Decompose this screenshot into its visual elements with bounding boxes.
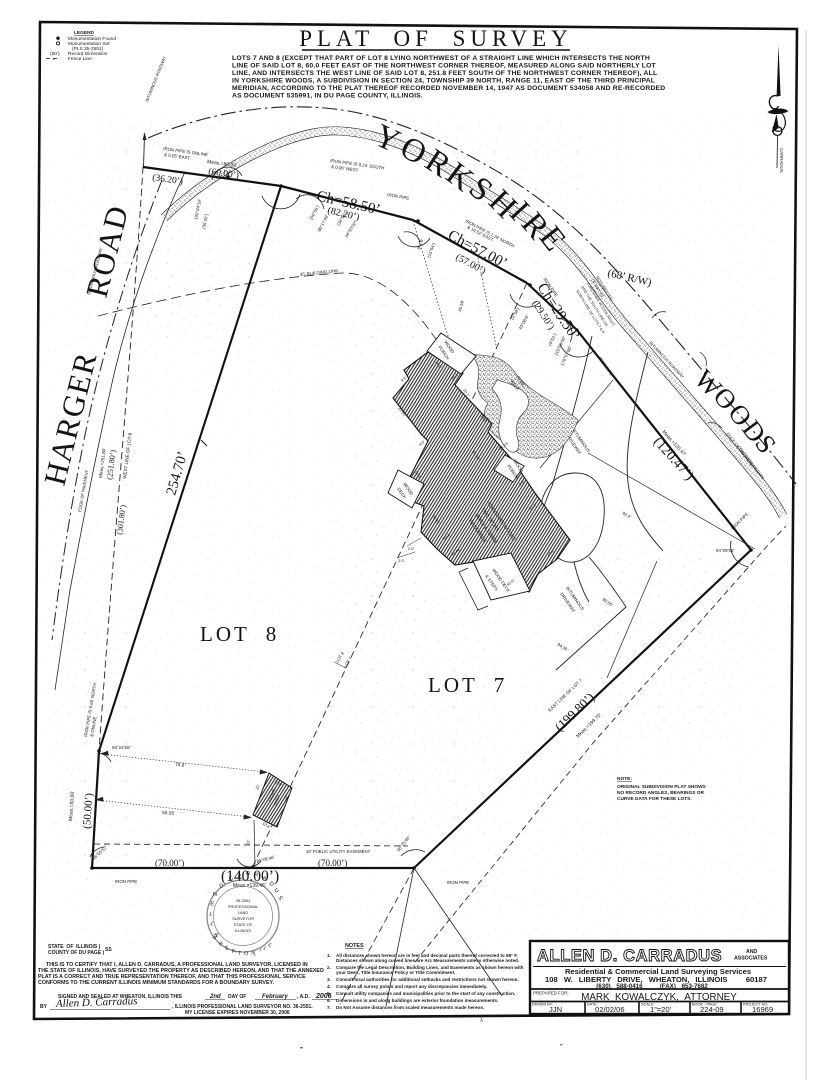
svg-text:1”=20’: 1”=20’	[650, 1005, 672, 1014]
svg-text:Dimensions in and along buildi: Dimensions in and along buildings are ex…	[336, 998, 498, 1003]
svg-text:(50’): (50’)	[50, 51, 60, 57]
svg-text:COUNTY OF DU PAGE ): COUNTY OF DU PAGE )	[48, 950, 105, 956]
svg-text:N: N	[213, 892, 217, 898]
svg-text:2.0’: 2.0’	[408, 546, 414, 551]
svg-text:(50.00’): (50.00’)	[81, 792, 95, 829]
svg-text:ASSOCIATES: ASSOCIATES	[734, 956, 768, 962]
svg-text:94°09’51”: 94°09’51”	[716, 548, 735, 553]
svg-text:February: February	[262, 994, 288, 1000]
svg-text:1.: 1.	[327, 953, 331, 958]
svg-text:PLAT OF SURVEY: PLAT OF SURVEY	[299, 26, 573, 51]
svg-text:2.0’: 2.0’	[398, 558, 404, 563]
svg-text:LOTS 7 AND 8 (EXCEPT THAT PART: LOTS 7 AND 8 (EXCEPT THAT PART OF LOT 8 …	[232, 55, 650, 62]
svg-text:4.: 4.	[327, 984, 331, 989]
svg-text:IN YORKSHIRE WOODS, A SUBDIVIS: IN YORKSHIRE WOODS, A SUBDIVISION IN SEC…	[232, 78, 655, 85]
svg-text:2.: 2.	[327, 965, 331, 970]
svg-text:ILLINOIS: ILLINOIS	[235, 928, 251, 933]
svg-text:NOTES: NOTES	[345, 943, 364, 949]
svg-text:IRON PIPE: IRON PIPE	[115, 879, 137, 884]
svg-text:CONFORMS TO THE CURRENT ILLINO: CONFORMS TO THE CURRENT ILLINOIS MINIMUM…	[38, 980, 274, 986]
svg-text:PREPARED FOR:: PREPARED FOR:	[533, 991, 569, 996]
svg-text:3.: 3.	[327, 977, 331, 982]
svg-text:PROFESSIONAL: PROFESSIONAL	[228, 904, 259, 909]
svg-text:10’ PUBLIC UTILITY EASEMENT: 10’ PUBLIC UTILITY EASEMENT	[306, 849, 371, 854]
svg-text:CURVE DATA FOR THESE LOTS.: CURVE DATA FOR THESE LOTS.	[617, 796, 692, 802]
svg-text:75.8’: 75.8’	[175, 762, 186, 769]
svg-text:56°24’55”: 56°24’55”	[112, 745, 131, 750]
svg-text:6.: 6.	[327, 998, 331, 1003]
svg-text:MY LICENSE EXPIRES NOVEMBER 30: MY LICENSE EXPIRES NOVEMBER 30, 2006	[185, 1010, 290, 1016]
svg-text:Consult local authorities for: Consult local authorities for additional…	[336, 977, 519, 982]
svg-text:SS: SS	[105, 947, 112, 953]
svg-text:R: R	[246, 871, 250, 877]
svg-text:(70.00’): (70.00’)	[318, 858, 347, 868]
svg-text:LINE, AND INTERSECTS THE WEST: LINE, AND INTERSECTS THE WEST LINE OF SA…	[232, 70, 657, 77]
svg-text:LOT 7: LOT 7	[428, 673, 507, 697]
svg-text:your Deed, Title Insurance Pol: your Deed, Title Insurance Policy or Tit…	[336, 970, 455, 975]
svg-text:, A.D.: , A.D.	[297, 994, 310, 1000]
svg-text:MERIDIAN, ACCORDING TO THE PLA: MERIDIAN, ACCORDING TO THE PLAT THEREOF …	[232, 85, 665, 92]
svg-text:02/02/06: 02/02/06	[595, 1005, 625, 1014]
svg-text:IRON PIPE: IRON PIPE	[447, 880, 469, 885]
svg-text:(70.00’): (70.00’)	[155, 858, 184, 868]
svg-text:Distances shown along curved l: Distances shown along curved lines are A…	[336, 958, 519, 963]
svg-text:Meas.=139.46’: Meas.=139.46’	[233, 883, 266, 889]
svg-text:Consult utility companies and: Consult utility companies and municipali…	[336, 991, 515, 996]
svg-text:AND: AND	[746, 949, 757, 955]
svg-text:LAND: LAND	[238, 910, 249, 915]
svg-text:DAY OF: DAY OF	[228, 994, 246, 1000]
svg-text:SURVEYOR: SURVEYOR	[232, 916, 254, 921]
svg-text:LINE OF SAID LOT 8, 60.0 FEET: LINE OF SAID LOT 8, 60.0 FEET EAST OF TH…	[232, 63, 657, 70]
svg-text:JJN: JJN	[549, 1005, 562, 1014]
svg-text:ORIGINAL SUBDIVISION PLAT SHOW: ORIGINAL SUBDIVISION PLAT SHOWS	[617, 784, 707, 790]
svg-text:35-2551: 35-2551	[236, 898, 250, 903]
svg-text:BY: BY	[40, 1004, 48, 1010]
svg-text:Record Dimension: Record Dimension	[68, 51, 108, 57]
svg-text:5.: 5.	[327, 991, 331, 996]
svg-text:(630) 588-0416 (FAX) 653-768: (630) 588-0416 (FAX) 653-7682	[596, 983, 708, 990]
svg-text:LOT 8: LOT 8	[200, 622, 279, 646]
svg-text:Monumentation Found: Monumentation Found	[68, 36, 116, 42]
svg-text:Do Not Assume distances from s: Do Not Assume distances from scaled meas…	[336, 1005, 484, 1010]
svg-text:NO RECORD ANGLES, BEARINGS OR: NO RECORD ANGLES, BEARINGS OR	[617, 790, 705, 796]
svg-text:22’: 22’	[245, 839, 251, 845]
svg-text:AS DOCUMENT 535991, IN DU PAGE: AS DOCUMENT 535991, IN DU PAGE COUNTY, I…	[232, 93, 423, 100]
svg-text:λ: λ	[480, 1018, 483, 1024]
svg-text:MARK KOWALCZYK, ATTORNEY: MARK KOWALCZYK, ATTORNEY	[581, 992, 737, 1003]
svg-text:Compare all survey points and: Compare all survey points and report any…	[336, 984, 487, 989]
svg-text:Fence Line: Fence Line	[68, 56, 92, 62]
svg-text:7.: 7.	[327, 1005, 331, 1010]
svg-text:O: O	[244, 951, 249, 957]
svg-text:NOTE:: NOTE:	[617, 776, 632, 782]
svg-text:ALLEN D. CARRADUS: ALLEN D. CARRADUS	[537, 947, 722, 965]
svg-text:STATE OF: STATE OF	[234, 922, 253, 927]
svg-text:CARRADUS: CARRADUS	[779, 148, 784, 173]
svg-text:2nd: 2nd	[209, 994, 221, 1000]
svg-text:68.05’: 68.05’	[162, 810, 175, 817]
svg-text:x: x	[53, 56, 55, 61]
svg-text:16969: 16969	[752, 1005, 773, 1014]
svg-text:224-09: 224-09	[700, 1005, 724, 1014]
svg-text:LEGEND: LEGEND	[74, 30, 95, 36]
